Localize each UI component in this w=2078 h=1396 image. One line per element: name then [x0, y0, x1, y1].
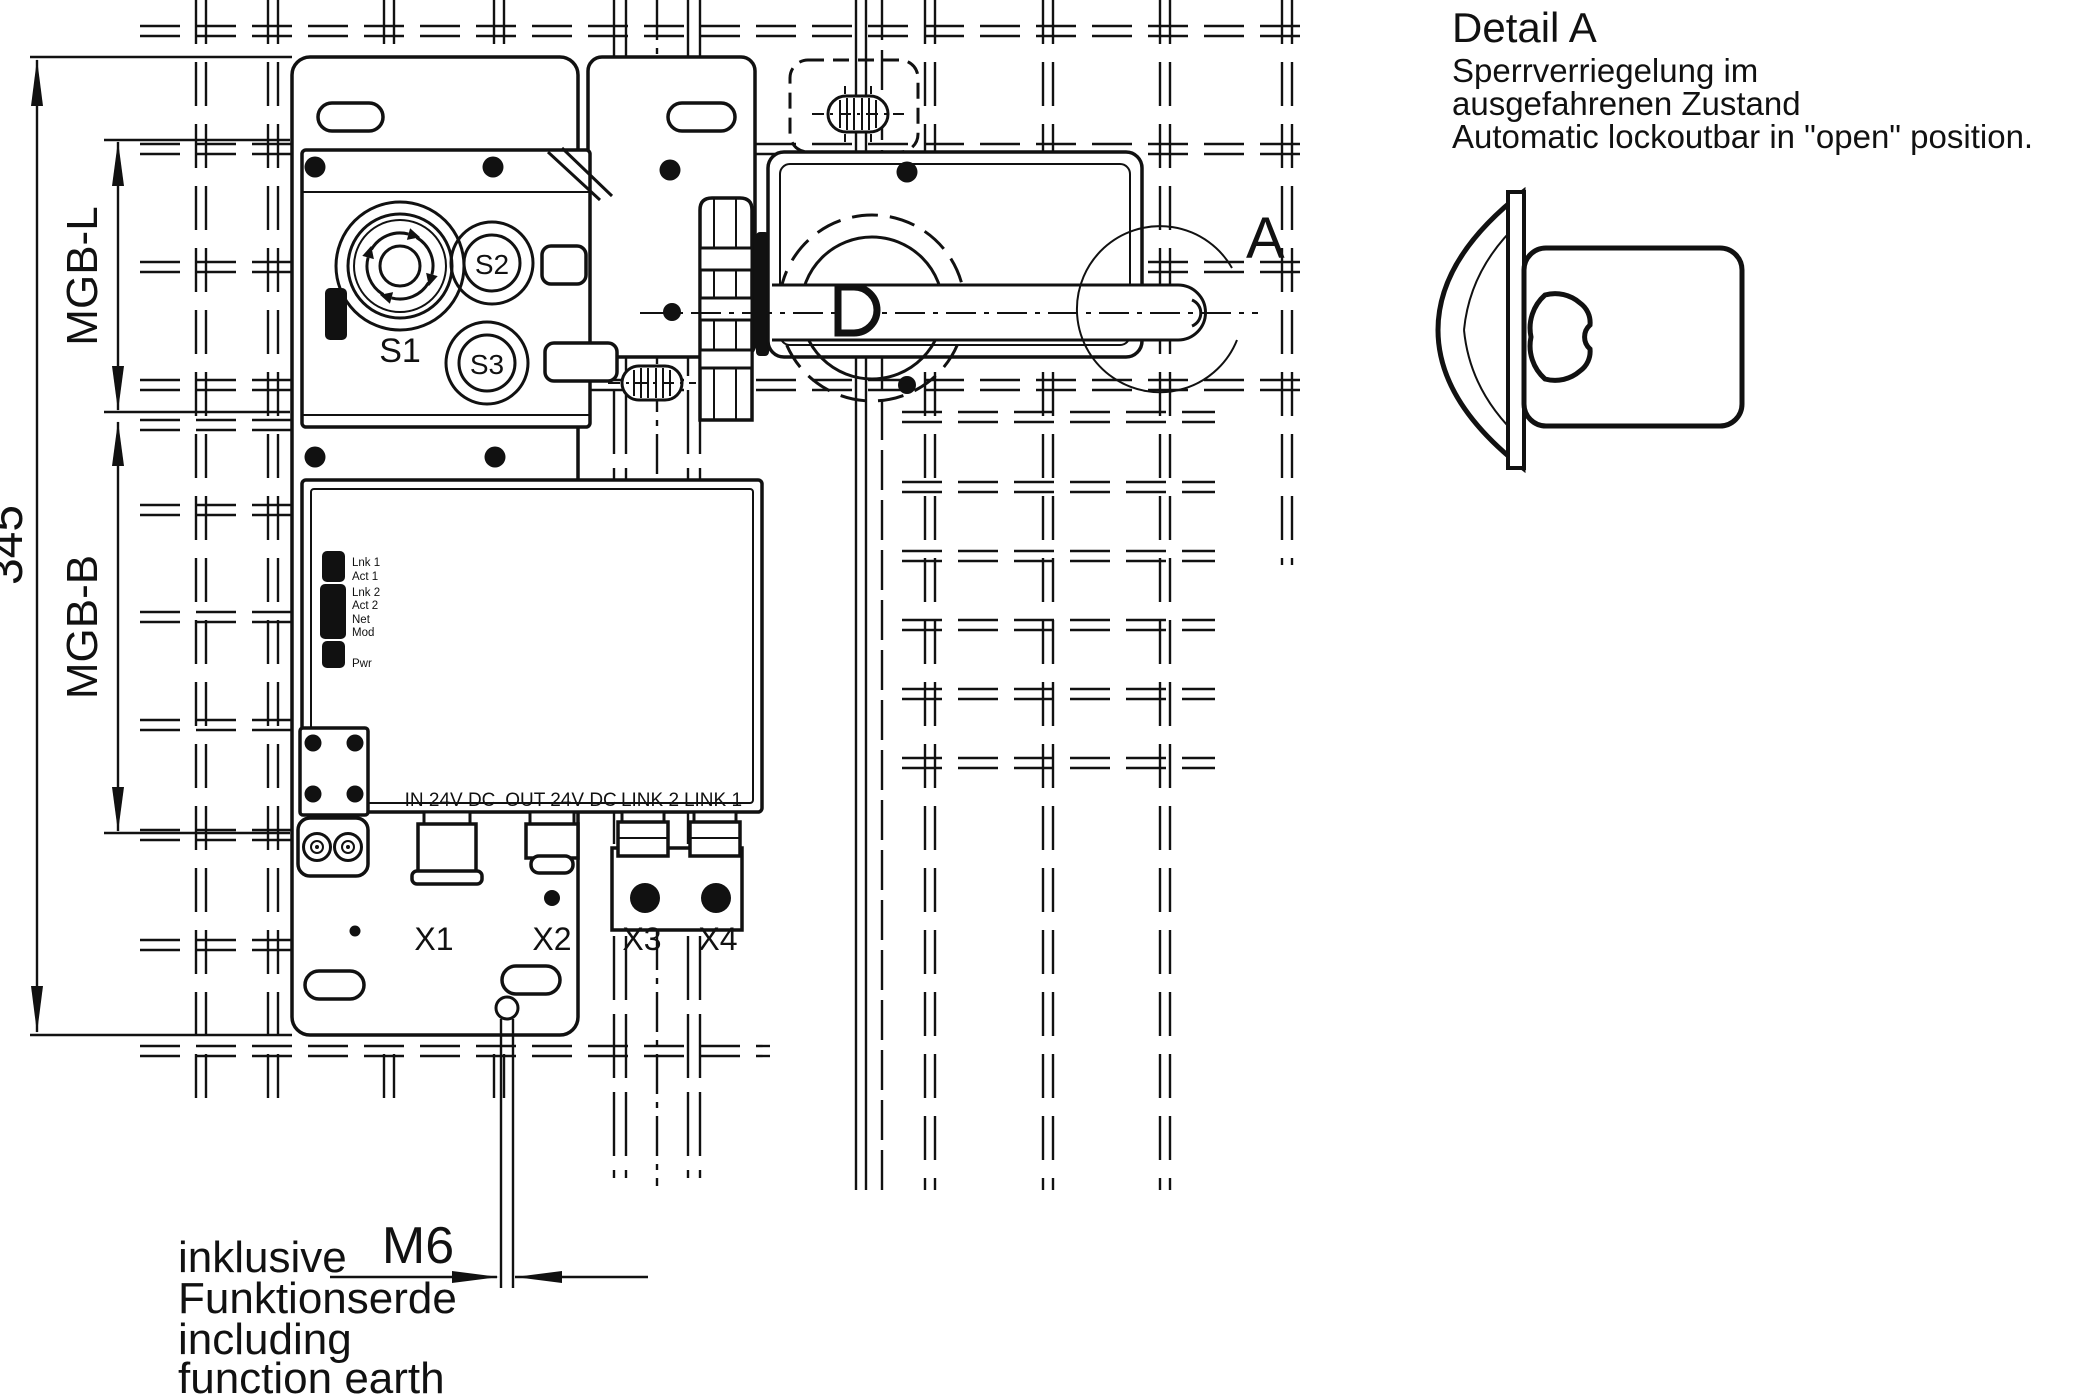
dimension-345: 345 — [0, 57, 292, 1035]
lock-module: S1 S2 S3 — [302, 150, 617, 427]
port-label-link1: LINK 1 — [684, 790, 742, 811]
hatched-slot-upper — [812, 86, 904, 142]
led-label-lnk2: Lnk 2 — [352, 587, 380, 599]
connector-x1[interactable] — [412, 812, 482, 884]
screw — [898, 376, 916, 394]
detail-a-sub-de-1: Sperrverriegelung im — [1452, 52, 1758, 89]
connector-label-x4: X4 — [698, 921, 737, 957]
connector-label-x3: X3 — [622, 921, 661, 957]
terminal-box — [300, 728, 368, 815]
screw — [897, 162, 918, 183]
port-label-in24vdc: IN 24V DC — [405, 790, 496, 811]
led-label-mod: Mod — [352, 627, 374, 639]
s3-label: S3 — [470, 349, 504, 380]
screw — [483, 157, 504, 178]
connector-label-x2: X2 — [532, 921, 571, 957]
screw — [660, 160, 681, 181]
port-label-out24vdc: OUT 24V DC — [505, 790, 617, 811]
earth-terminal-block — [298, 818, 368, 876]
status-led-block — [320, 551, 346, 668]
dimension-m6: M6 — [330, 997, 648, 1288]
led-label-net: Net — [352, 614, 371, 626]
mounting-slot-bottom-left — [305, 971, 364, 999]
connector-label-x1: X1 — [414, 921, 453, 957]
mounting-slot-top — [318, 103, 383, 131]
s2-button[interactable]: S2 — [451, 222, 533, 304]
handle-module — [768, 60, 1142, 401]
dim-mgb-b-label: MGB-B — [58, 555, 107, 699]
mounting-slot-door — [668, 103, 735, 131]
detail-a-section: Detail A Sperrverriegelung im ausgefahre… — [1438, 4, 2033, 468]
padlock-hole-insert — [838, 287, 877, 333]
padlock-hole — [1530, 294, 1590, 381]
dimension-mgb-l: MGB-L — [58, 140, 290, 412]
port-label-link2: LINK 2 — [621, 790, 679, 811]
escape-release-opening — [545, 343, 617, 381]
dimension-mgb-b: MGB-B — [58, 421, 290, 833]
screw — [305, 157, 326, 178]
plate-hole — [350, 926, 361, 937]
led-label-act2: Act 2 — [352, 600, 378, 612]
screw — [485, 447, 506, 468]
earth-note-en-2: function earth — [178, 1354, 445, 1396]
port-labels: IN 24V DC OUT 24V DC LINK 2 LINK 1 — [405, 790, 742, 811]
screw — [305, 447, 326, 468]
detail-a-title: Detail A — [1452, 4, 1597, 51]
mounting-slot-bottom-right — [502, 966, 560, 994]
technical-drawing-page: S1 S2 S3 — [0, 0, 2078, 1396]
mgb-installation-drawing: S1 S2 S3 — [0, 0, 2078, 1396]
detail-a-sub-de-2: ausgefahrenen Zustand — [1452, 85, 1801, 122]
hatched-slot-lower — [608, 366, 696, 400]
led-label-act1: Act 1 — [352, 571, 378, 583]
s1-label: S1 — [379, 332, 421, 370]
s2-label: S2 — [475, 249, 509, 280]
detail-callout-letter: A — [1246, 206, 1285, 271]
dim-mgb-l-label: MGB-L — [58, 206, 107, 345]
s3-button[interactable]: S3 — [446, 322, 528, 404]
led-label-pwr: Pwr — [352, 658, 372, 670]
detail-a-illustration — [1438, 192, 1742, 468]
detail-a-sub-en: Automatic lockoutbar in "open" position. — [1452, 118, 2033, 155]
led-label-lnk1: Lnk 1 — [352, 557, 380, 569]
dim-345-label: 345 — [0, 505, 33, 585]
key-opening — [542, 246, 586, 284]
dim-m6-label: M6 — [382, 1217, 454, 1275]
